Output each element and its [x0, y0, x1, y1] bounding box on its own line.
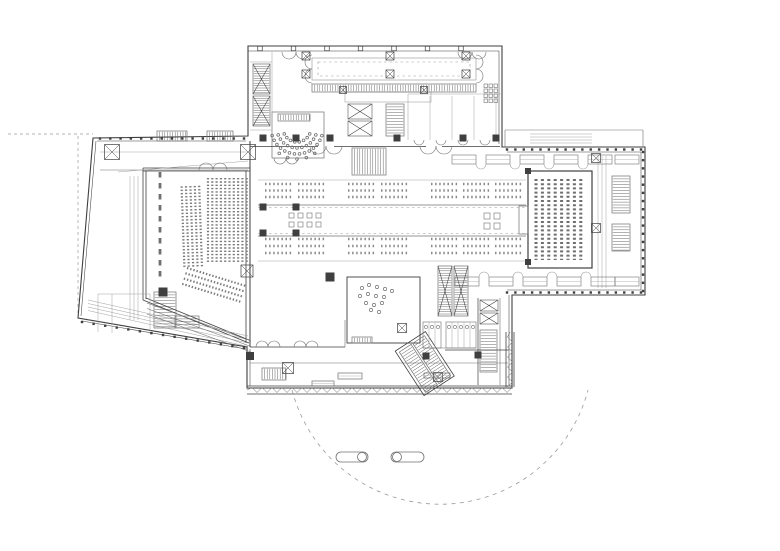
plaza-pill-benches: [336, 452, 424, 462]
floor-plan-page: [0, 0, 780, 551]
floor-plan-drawing: [0, 0, 780, 551]
entrance-plaza-circle: [292, 390, 588, 504]
